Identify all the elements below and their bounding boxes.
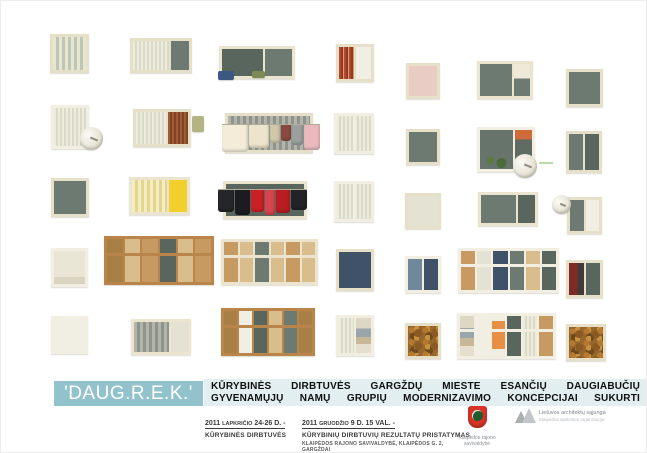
window-4-7-panes [569, 263, 600, 295]
window-pane [460, 316, 474, 356]
window-pane [271, 242, 285, 282]
window-4-4 [336, 249, 374, 291]
window-pane [409, 132, 437, 162]
window-2-6 [477, 127, 535, 172]
window-pane [356, 47, 371, 79]
window-pane [224, 311, 237, 353]
window-2-5 [406, 129, 440, 165]
window-1-3 [219, 46, 295, 79]
window-4-1-panes [54, 251, 85, 284]
window-5-6 [457, 313, 556, 359]
window-1-1 [50, 34, 89, 73]
window-pane [269, 311, 282, 353]
window-pane [569, 263, 584, 295]
window-5-5 [405, 323, 441, 359]
window-pane [570, 200, 584, 231]
architects-union-name: Lietuvos architektų sąjunga [539, 410, 606, 416]
window-4-1 [51, 248, 88, 287]
window-1-5 [406, 63, 440, 99]
window-pane [480, 64, 512, 96]
window-pane [255, 242, 269, 282]
window-pane [171, 41, 189, 70]
window-pane [54, 251, 85, 284]
municipality-shield-icon [468, 406, 487, 428]
window-pane [569, 72, 600, 104]
window-1-4-panes [339, 47, 371, 79]
poster-subtitle-bar: KŪRYBINĖS DIRBTUVĖS GARGŽDŲ MIESTE ESANČ… [204, 379, 647, 406]
event-workshop-date: 2011 LAPKRIČIO 24-26 D. - [205, 420, 285, 429]
window-1-2-panes [133, 41, 189, 70]
window-3-5 [405, 193, 441, 229]
window-3-2-panes [132, 180, 187, 212]
window-3-4-panes [337, 184, 371, 219]
window-pane [408, 326, 438, 356]
window-4-6 [458, 248, 559, 293]
window-4-7 [566, 260, 603, 298]
window-pane [510, 251, 524, 290]
window-pane [254, 311, 267, 353]
satellite-dish-icon [513, 154, 537, 178]
window-3-7 [567, 197, 602, 234]
window-1-7-panes [569, 72, 600, 104]
window-2-7 [566, 131, 602, 173]
window-3-1-panes [54, 181, 86, 214]
window-1-1-panes [53, 37, 86, 70]
window-pane [337, 184, 353, 219]
window-5-2 [131, 319, 191, 355]
hanging-cloth [192, 116, 204, 132]
window-1-4 [336, 44, 374, 82]
window-5-7-panes [569, 327, 603, 358]
poster-title-bar: 'DAUG.R.E.K.' [54, 381, 203, 406]
laundry-item [249, 125, 269, 148]
event-workshop-days: 24-26 D. - [254, 420, 285, 427]
window-pane [356, 318, 371, 353]
window-4-3 [221, 239, 318, 285]
window-1-2 [130, 38, 192, 73]
laundry-item [218, 190, 234, 212]
window-4-3-panes [224, 242, 315, 282]
window-5-3-panes [224, 311, 312, 353]
window-4-2 [104, 236, 214, 285]
window-5-5-panes [408, 326, 438, 356]
window-2-5-panes [409, 132, 437, 162]
window-pane [171, 322, 188, 352]
laundry-item [281, 125, 291, 141]
window-2-2-panes [136, 112, 188, 144]
window-3-2 [129, 177, 190, 215]
window-pane [518, 195, 535, 223]
window-pane [514, 64, 530, 96]
window-4-5-panes [408, 259, 438, 290]
window-5-3 [221, 308, 315, 356]
event-workshop-year: 2011 [205, 420, 220, 427]
window-5-4-panes [339, 318, 371, 353]
event-presentation: 2011 GRUODŽIO 9 D. 15 VAL. - KŪRYBINIŲ D… [302, 412, 472, 453]
window-2-2 [133, 109, 191, 147]
window-3-3 [223, 181, 307, 219]
window-pane [507, 316, 521, 356]
window-1-6-panes [480, 64, 530, 96]
laundry-item [235, 190, 250, 215]
window-pane [424, 259, 438, 290]
window-pane [54, 181, 86, 214]
window-3-1 [51, 178, 89, 217]
laundry-item [270, 125, 280, 143]
window-pane [569, 134, 583, 170]
window-pane [539, 316, 553, 356]
window-2-3 [225, 113, 313, 153]
window-3-5-panes [408, 196, 438, 226]
window-pane [408, 196, 438, 226]
window-3-6-panes [481, 195, 535, 223]
laundry-item [276, 190, 290, 213]
window-pane [586, 263, 601, 295]
window-pane [476, 316, 490, 356]
window-4-2-panes [107, 239, 211, 282]
window-pane [286, 242, 300, 282]
event-presentation-time: 9 D. 15 VAL. - [351, 420, 395, 427]
event-presentation-date: 2011 GRUODŽIO 9 D. 15 VAL. - [302, 420, 395, 429]
window-pane [339, 47, 354, 79]
window-pane [178, 239, 194, 282]
window-pane [492, 316, 506, 356]
window-pane [125, 239, 141, 282]
window-pane [339, 252, 371, 288]
window-pane [355, 184, 371, 219]
clothesline [539, 162, 553, 164]
poster: 'DAUG.R.E.K.' KŪRYBINĖS DIRBTUVĖS GARGŽD… [0, 0, 647, 453]
window-pane [224, 242, 238, 282]
laundry-item [292, 125, 303, 145]
subtitle-line-1: KŪRYBINĖS DIRBTUVĖS GARGŽDŲ MIESTE ESANČ… [211, 381, 640, 393]
window-pane [477, 251, 491, 290]
event-presentation-year: 2011 [302, 420, 317, 427]
window-pane [160, 239, 176, 282]
window-pane [586, 200, 600, 231]
window-1-5-panes [409, 66, 437, 96]
window-pane [169, 180, 187, 212]
window-5-6-panes [460, 316, 553, 356]
window-pane [409, 66, 437, 96]
window-pane [523, 316, 537, 356]
window-pane [569, 327, 603, 358]
window-pane [53, 37, 86, 70]
satellite-dish-icon [552, 195, 571, 214]
window-3-4 [334, 181, 374, 222]
window-pane [132, 180, 167, 212]
window-pane [339, 318, 354, 353]
window-5-7 [566, 324, 606, 361]
window-pane [54, 319, 85, 351]
architects-union-logo-block: Lietuvos architektų sąjunga Klaipėdos ap… [515, 407, 606, 425]
laundry-item [265, 190, 275, 215]
window-pane [493, 251, 507, 290]
satellite-dish-icon [80, 127, 103, 150]
window-4-5 [405, 256, 441, 293]
window-pane [542, 251, 556, 290]
poster-title: 'DAUG.R.E.K.' [64, 383, 193, 404]
municipality-caption: Klaipėdos rajono savivaldybė [453, 435, 501, 447]
window-pane [136, 112, 166, 144]
window-pane [239, 311, 252, 353]
hanging-cloth [218, 71, 234, 80]
window-pane [585, 134, 599, 170]
window-pane [355, 116, 371, 151]
window-2-7-panes [569, 134, 599, 170]
laundry-item [291, 190, 307, 210]
window-pane [481, 195, 516, 223]
event-presentation-title: KŪRYBINIŲ DIRBTUVIŲ REZULTATŲ PRISTATYMA… [302, 432, 472, 439]
window-pane [299, 311, 312, 353]
architects-union-branch: Klaipėdos apskrities organizacija [539, 417, 606, 422]
window-pane [240, 242, 254, 282]
window-pane [134, 322, 169, 352]
window-5-2-panes [134, 322, 188, 352]
window-1-6 [477, 61, 533, 99]
laundry-item [304, 125, 320, 150]
window-2-4-panes [337, 116, 371, 151]
laundry-item [251, 190, 264, 212]
architects-union-text: Lietuvos architektų sąjunga Klaipėdos ap… [539, 407, 606, 422]
hanging-cloth [252, 71, 265, 78]
window-2-4 [334, 113, 374, 154]
window-pane [168, 112, 188, 144]
window-pane [461, 251, 475, 290]
window-5-1-panes [54, 319, 85, 351]
event-workshop: 2011 LAPKRIČIO 24-26 D. - KŪRYBINĖS DIRB… [205, 412, 298, 439]
window-pane [284, 311, 297, 353]
window-1-7 [566, 69, 603, 107]
window-3-7-panes [570, 200, 599, 231]
window-3-6 [478, 192, 538, 226]
municipality-logo-block: Klaipėdos rajono savivaldybė [453, 406, 501, 447]
window-5-1 [51, 316, 88, 354]
laundry-line [218, 190, 307, 215]
window-2-1 [51, 105, 89, 149]
window-pane [526, 251, 540, 290]
window-pane [408, 259, 422, 290]
window-4-4-panes [339, 252, 371, 288]
window-5-4 [336, 315, 374, 356]
window-pane [337, 116, 353, 151]
laundry-item [222, 125, 248, 152]
architects-union-icon [515, 407, 535, 425]
event-workshop-title: KŪRYBINĖS DIRBTUVĖS [205, 432, 298, 439]
window-pane [195, 239, 211, 282]
window-pane [142, 239, 158, 282]
window-pane [302, 242, 316, 282]
event-workshop-month: LAPKRIČIO [222, 421, 252, 427]
window-pane [107, 239, 123, 282]
subtitle-line-2: GYVENAMŲJŲ NAMŲ GRUPIŲ MODERNIZAVIMO KON… [211, 393, 640, 405]
window-4-6-panes [461, 251, 556, 290]
event-presentation-venue: KLAIPĖDOS RAJONO SAVIVALDYBĖ, KLAIPĖDOS … [302, 441, 472, 453]
event-presentation-month: GRUODŽIO [319, 421, 349, 427]
laundry-line [222, 125, 320, 152]
window-pane [480, 130, 513, 169]
window-pane [133, 41, 169, 70]
window-pane [265, 49, 292, 76]
